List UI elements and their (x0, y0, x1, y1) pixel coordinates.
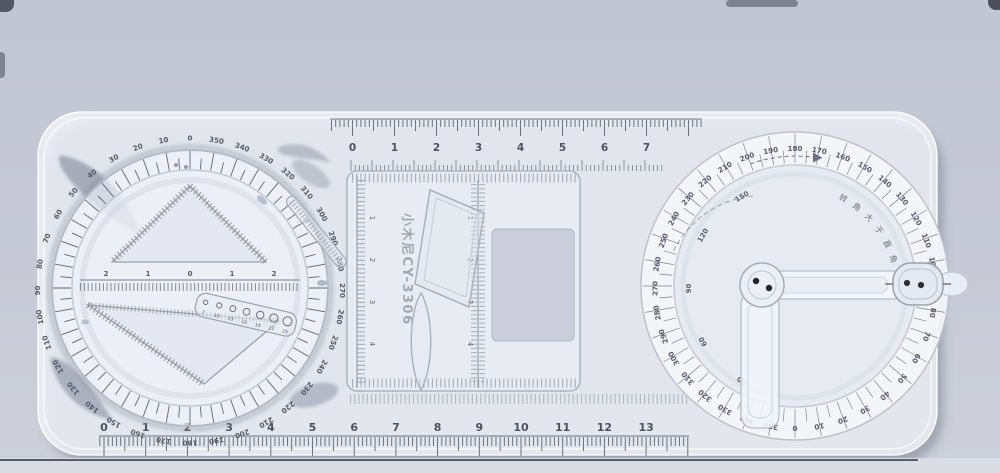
svg-text:12: 12 (597, 421, 612, 434)
svg-text:9: 9 (475, 421, 483, 434)
svg-text:10: 10 (513, 421, 529, 434)
svg-text:0: 0 (792, 424, 797, 433)
svg-text:10: 10 (158, 135, 169, 146)
svg-text:10: 10 (814, 421, 825, 432)
svg-text:13: 13 (638, 421, 653, 434)
svg-text:5: 5 (559, 142, 566, 154)
svg-text:5: 5 (309, 421, 317, 434)
svg-text:3: 3 (475, 142, 482, 154)
photo-stage: 01234567 012345678910111213 小木尼CY-3306 1… (0, 0, 1000, 473)
svg-text:180: 180 (787, 144, 802, 153)
svg-text:7: 7 (392, 421, 400, 434)
svg-text:1: 1 (230, 270, 235, 278)
svg-text:2: 2 (104, 270, 109, 278)
svg-text:4: 4 (466, 342, 474, 347)
svg-text:4: 4 (368, 342, 376, 347)
svg-text:3: 3 (368, 300, 376, 304)
svg-text:270: 270 (338, 283, 347, 298)
svg-text:1: 1 (391, 142, 398, 154)
svg-text:180: 180 (182, 439, 197, 448)
svg-text:4: 4 (517, 142, 524, 154)
svg-text:11: 11 (555, 421, 570, 434)
svg-text:0: 0 (187, 134, 192, 143)
svg-text:80: 80 (928, 307, 939, 318)
svg-text:80: 80 (35, 258, 46, 269)
table-edge-line (0, 459, 918, 461)
svg-text:7: 7 (643, 142, 650, 154)
svg-text:6: 6 (601, 142, 608, 154)
svg-text:270: 270 (651, 281, 660, 296)
svg-text:0: 0 (349, 142, 356, 154)
svg-text:90: 90 (33, 285, 42, 295)
svg-text:8: 8 (434, 421, 442, 434)
svg-text:6: 6 (350, 421, 358, 434)
svg-text:2: 2 (272, 270, 277, 278)
svg-text:2: 2 (433, 142, 440, 154)
svg-text:0: 0 (188, 270, 193, 278)
svg-text:2: 2 (368, 258, 376, 262)
svg-text:1: 1 (368, 216, 376, 220)
drawing-ruler-tool: 01234567 012345678910111213 小木尼CY-3306 1… (0, 0, 1000, 473)
svg-text:1: 1 (146, 270, 151, 278)
svg-text:90: 90 (685, 284, 693, 294)
